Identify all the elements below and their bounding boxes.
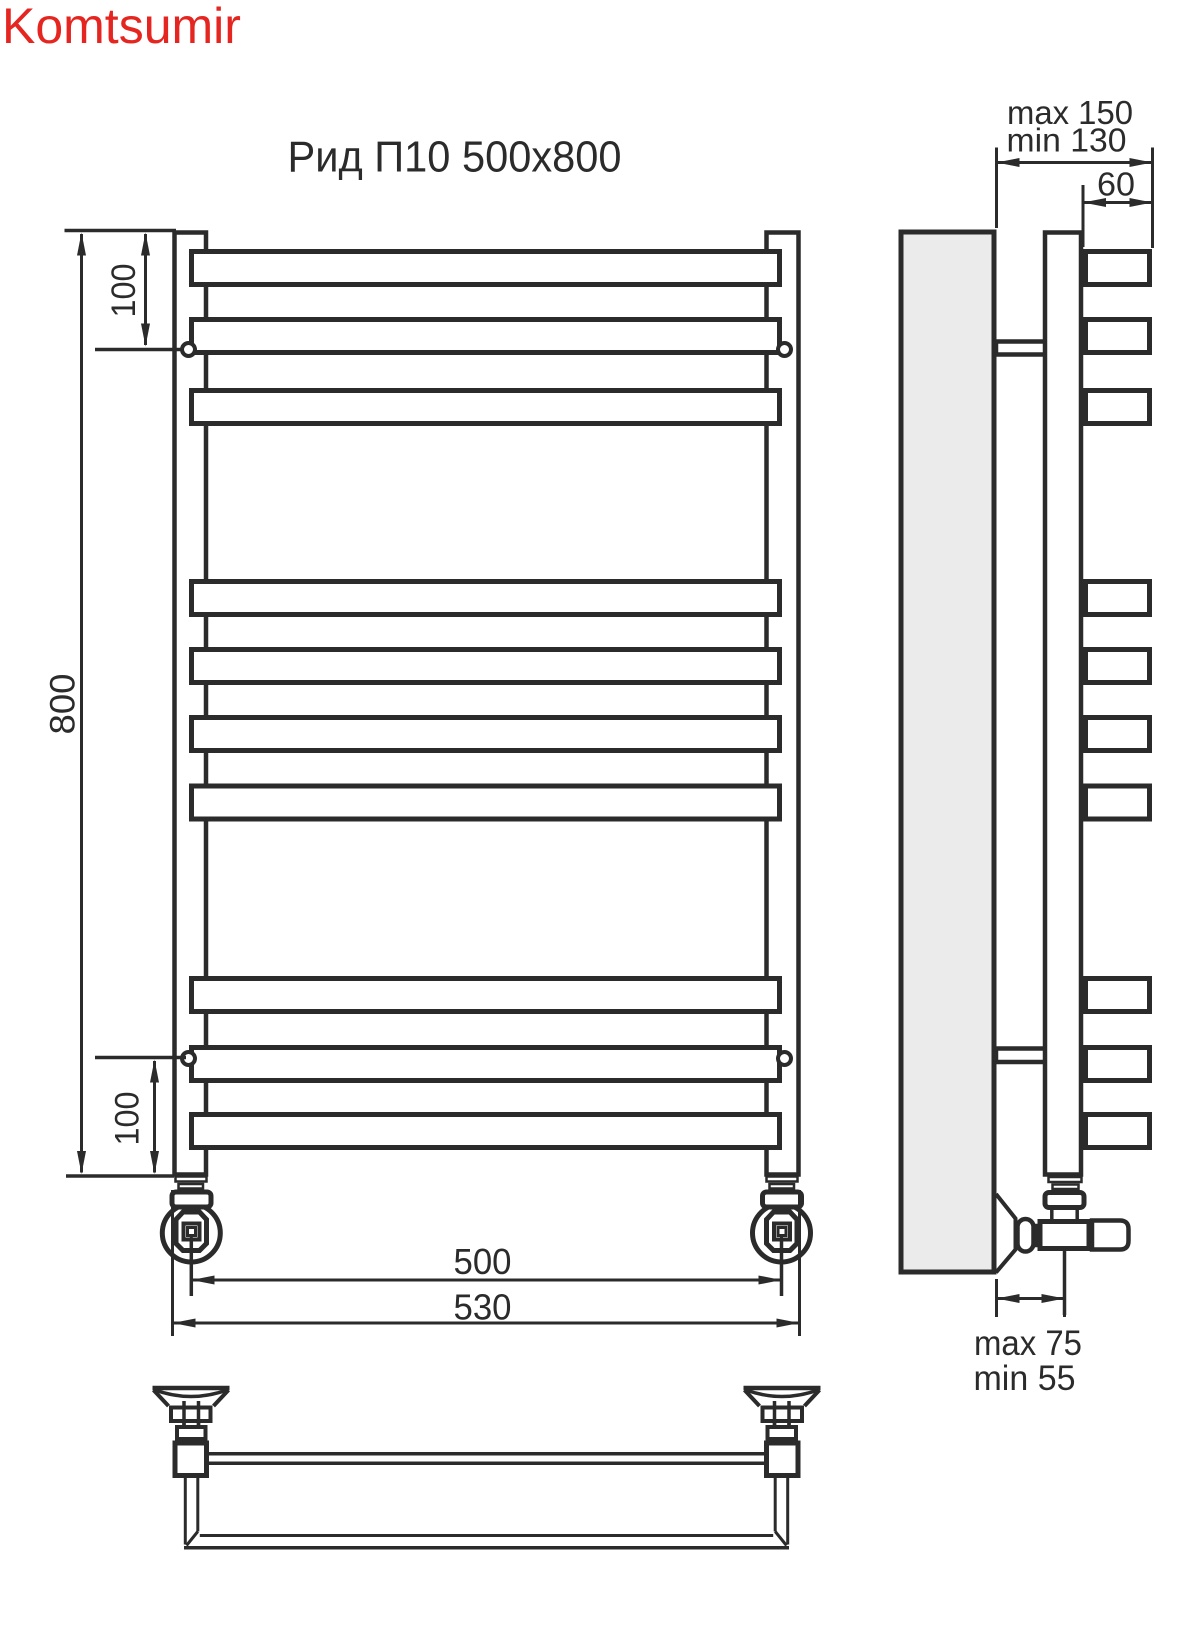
svg-text:min 55: min 55 [974, 1359, 1076, 1398]
svg-text:800: 800 [42, 674, 82, 735]
svg-text:530: 530 [454, 1287, 512, 1328]
svg-text:max 75: max 75 [974, 1324, 1082, 1363]
svg-text:500: 500 [454, 1241, 512, 1282]
svg-text:100: 100 [108, 1092, 146, 1146]
svg-text:60: 60 [1097, 166, 1135, 203]
svg-text:Рид П10 500x800: Рид П10 500x800 [288, 133, 622, 182]
svg-text:100: 100 [105, 264, 143, 318]
svg-text:min 130: min 130 [1007, 122, 1127, 159]
svg-text:Komtsumir: Komtsumir [2, 0, 241, 54]
